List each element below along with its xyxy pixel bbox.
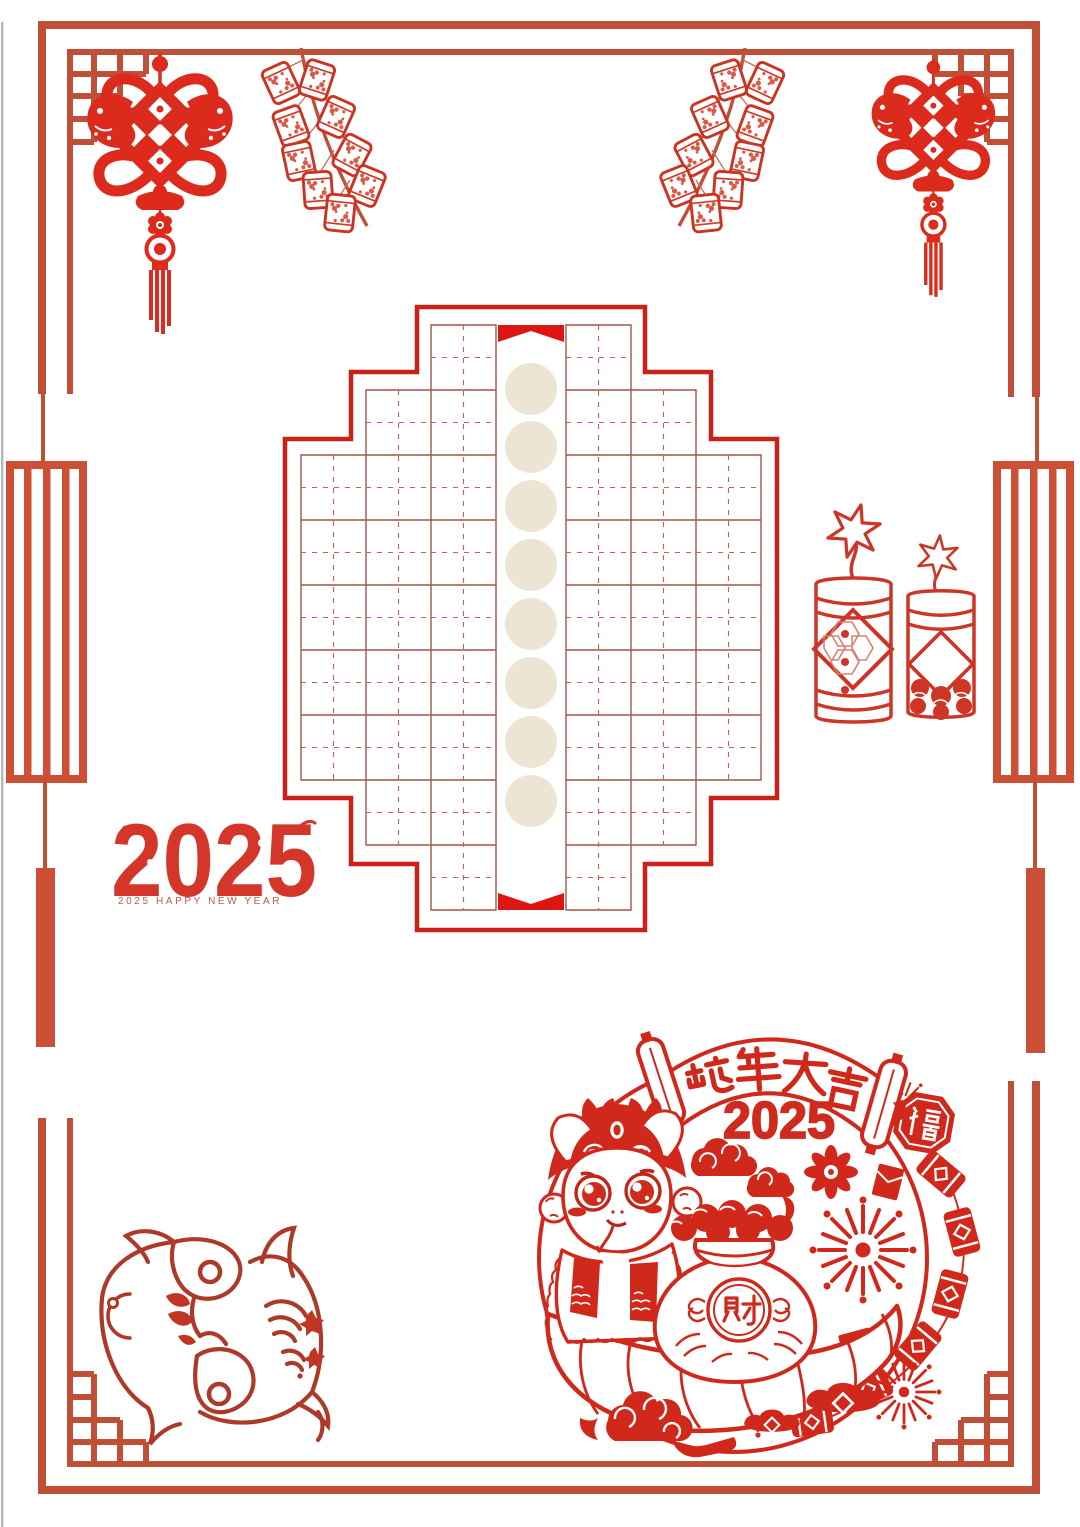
svg-text:2025: 2025 <box>723 1092 835 1150</box>
svg-text:2025 HAPPY NEW YEAR: 2025 HAPPY NEW YEAR <box>118 896 282 907</box>
